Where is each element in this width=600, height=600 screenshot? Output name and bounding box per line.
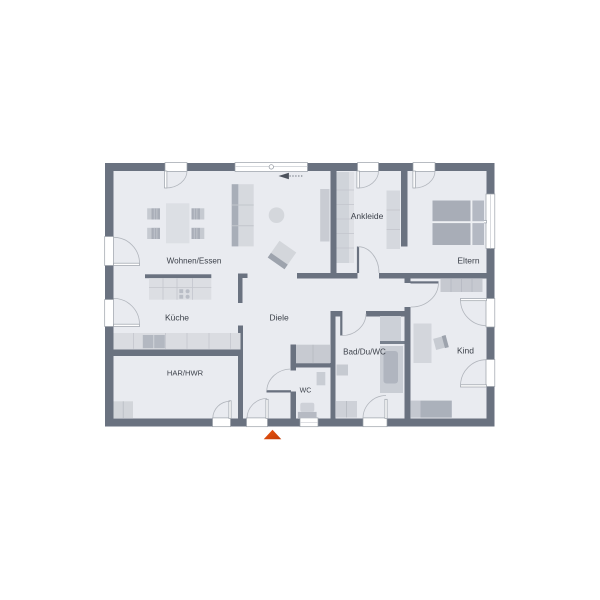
svg-text:WC: WC bbox=[300, 387, 312, 394]
svg-text:Diele: Diele bbox=[269, 313, 289, 323]
svg-text:HAR/HWR: HAR/HWR bbox=[167, 368, 204, 377]
svg-text:Küche: Küche bbox=[165, 313, 189, 323]
svg-text:Wohnen/Essen: Wohnen/Essen bbox=[167, 257, 222, 266]
svg-text:Kind: Kind bbox=[457, 346, 474, 356]
svg-text:Bad/Du/WC: Bad/Du/WC bbox=[343, 348, 386, 357]
svg-text:Ankleide: Ankleide bbox=[351, 211, 384, 221]
svg-text:Eltern: Eltern bbox=[457, 255, 479, 265]
